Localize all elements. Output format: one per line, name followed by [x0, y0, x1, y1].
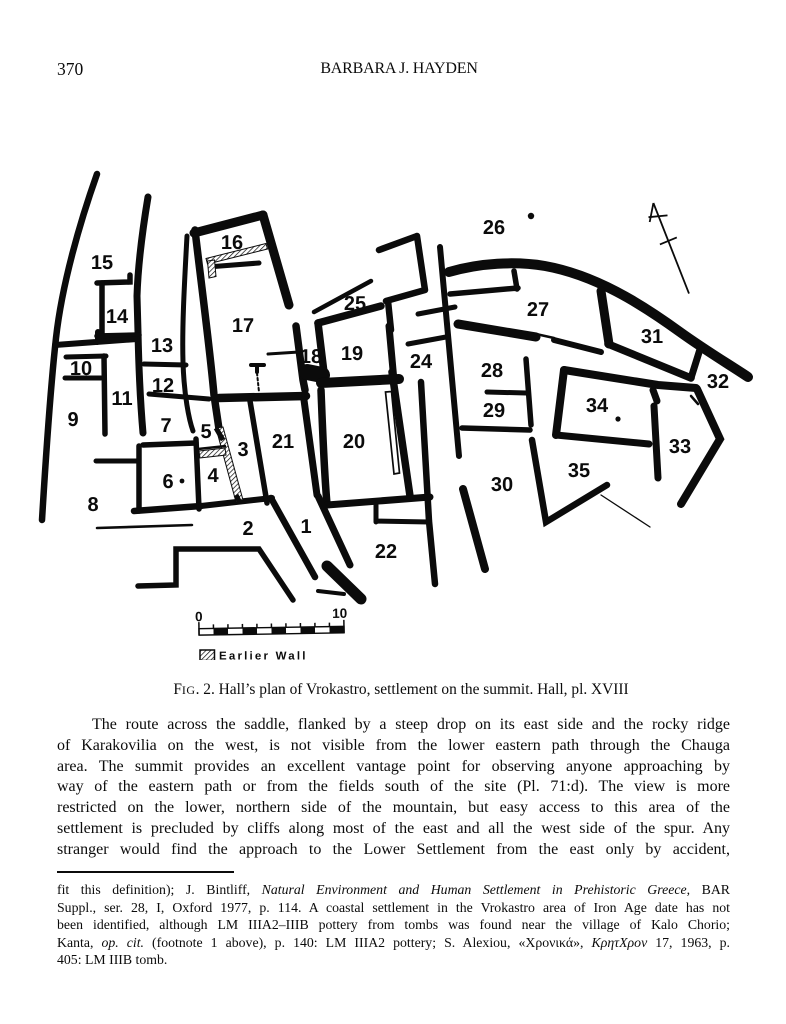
svg-text:3: 3: [237, 439, 248, 461]
svg-text:13: 13: [151, 335, 173, 357]
svg-text:33: 33: [669, 436, 691, 458]
svg-text:2: 2: [242, 518, 253, 540]
svg-text:Earlier Wall: Earlier Wall: [219, 651, 308, 661]
svg-text:25: 25: [344, 293, 366, 315]
svg-text:11: 11: [111, 388, 132, 410]
svg-text:34: 34: [586, 395, 609, 417]
svg-text:12: 12: [152, 375, 174, 397]
svg-text:24: 24: [410, 351, 433, 373]
svg-text:19: 19: [341, 343, 363, 365]
svg-text:6: 6: [162, 471, 173, 493]
svg-text:16: 16: [221, 232, 243, 254]
svg-text:21: 21: [272, 431, 294, 453]
svg-text:5: 5: [200, 421, 211, 443]
svg-text:14: 14: [106, 306, 129, 328]
svg-text:22: 22: [375, 541, 397, 563]
svg-text:15: 15: [91, 252, 113, 274]
svg-text:0: 0: [195, 609, 203, 624]
svg-text:10: 10: [332, 606, 347, 621]
svg-text:32: 32: [707, 371, 729, 393]
svg-text:28: 28: [481, 360, 503, 382]
svg-text:18: 18: [300, 346, 322, 368]
svg-text:30: 30: [491, 474, 513, 496]
svg-text:31: 31: [641, 326, 663, 348]
svg-text:4: 4: [207, 465, 219, 487]
svg-text:29: 29: [483, 400, 505, 422]
svg-text:26: 26: [483, 217, 505, 239]
svg-text:20: 20: [343, 431, 365, 453]
svg-text:27: 27: [527, 299, 549, 321]
svg-text:10: 10: [70, 358, 92, 380]
svg-text:8: 8: [87, 494, 98, 516]
svg-text:1: 1: [300, 516, 311, 538]
svg-text:9: 9: [67, 409, 78, 431]
svg-text:35: 35: [568, 460, 590, 482]
svg-text:17: 17: [232, 315, 254, 337]
svg-text:7: 7: [160, 415, 171, 437]
